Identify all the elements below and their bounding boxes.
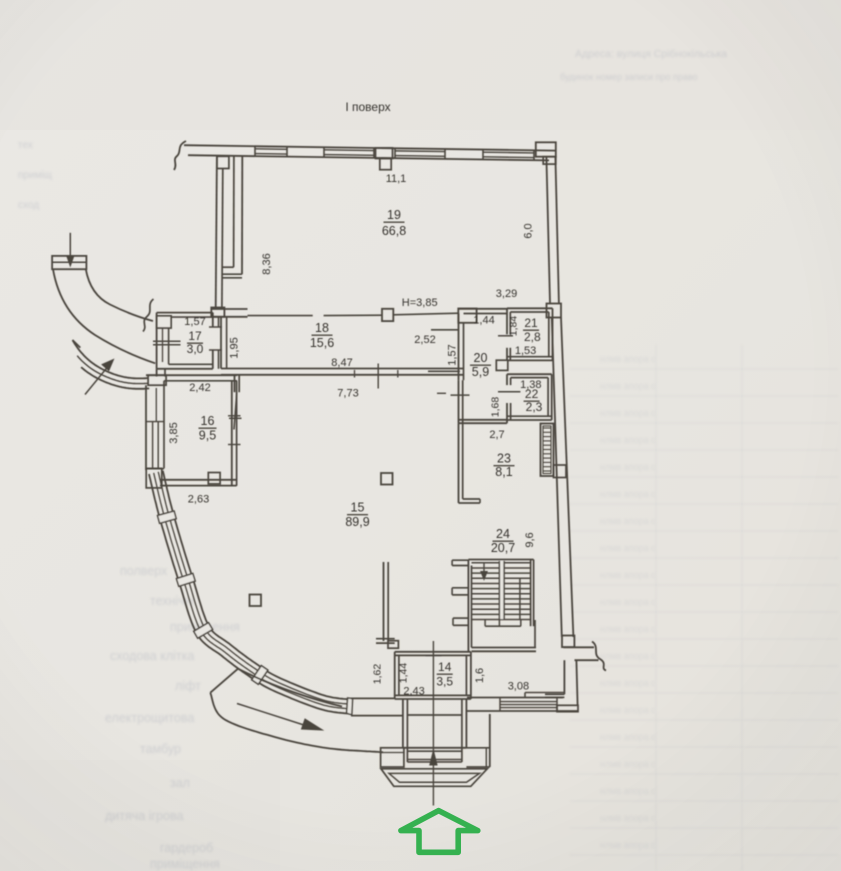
svg-text:1,84: 1,84 [508, 316, 520, 337]
svg-text:18: 18 [315, 321, 329, 335]
svg-text:8,36: 8,36 [261, 253, 273, 274]
svg-text:22: 22 [525, 387, 539, 401]
svg-text:15: 15 [351, 501, 365, 515]
svg-text:3,5: 3,5 [436, 675, 453, 689]
svg-text:3,85: 3,85 [168, 422, 180, 443]
svg-text:9,6: 9,6 [524, 532, 536, 547]
svg-text:3,29: 3,29 [496, 288, 517, 300]
svg-text:20: 20 [474, 351, 488, 365]
svg-text:8,47: 8,47 [331, 357, 352, 369]
svg-text:1,53: 1,53 [515, 345, 536, 357]
svg-text:3,0: 3,0 [187, 342, 204, 356]
svg-text:9,5: 9,5 [199, 429, 216, 443]
svg-text:19: 19 [387, 208, 401, 222]
svg-text:2,63: 2,63 [188, 494, 209, 506]
svg-text:15,6: 15,6 [310, 336, 334, 350]
svg-text:2,7: 2,7 [489, 429, 504, 441]
svg-text:2,3: 2,3 [526, 400, 543, 414]
svg-text:23: 23 [497, 452, 511, 466]
svg-text:1,44: 1,44 [473, 315, 494, 327]
svg-text:І поверх: І поверх [345, 100, 390, 114]
svg-text:3,08: 3,08 [508, 681, 529, 693]
svg-text:14: 14 [438, 660, 452, 674]
svg-text:8,1: 8,1 [495, 465, 512, 479]
svg-text:20,7: 20,7 [491, 541, 515, 555]
svg-text:89,9: 89,9 [345, 515, 369, 529]
svg-text:1,57: 1,57 [447, 344, 459, 365]
svg-text:16: 16 [201, 414, 215, 428]
svg-text:66,8: 66,8 [382, 224, 406, 238]
svg-text:24: 24 [496, 527, 510, 541]
svg-text:1,6: 1,6 [474, 668, 486, 683]
svg-text:1,57: 1,57 [184, 316, 205, 328]
svg-text:2,52: 2,52 [414, 334, 435, 346]
svg-text:21: 21 [524, 316, 538, 330]
svg-text:11,1: 11,1 [386, 173, 407, 185]
svg-text:2,8: 2,8 [524, 330, 541, 344]
svg-text:7,73: 7,73 [337, 388, 358, 400]
svg-text:1,62: 1,62 [372, 664, 384, 685]
svg-text:1,44: 1,44 [398, 663, 410, 684]
svg-text:1,95: 1,95 [229, 337, 241, 358]
svg-text:1,68: 1,68 [490, 397, 502, 418]
svg-text:5,9: 5,9 [472, 365, 489, 379]
svg-text:17: 17 [188, 329, 202, 343]
svg-text:2,42: 2,42 [189, 382, 210, 394]
svg-text:Н=3,85: Н=3,85 [402, 297, 438, 309]
svg-text:2,43: 2,43 [403, 686, 424, 698]
svg-text:6,0: 6,0 [523, 223, 535, 238]
